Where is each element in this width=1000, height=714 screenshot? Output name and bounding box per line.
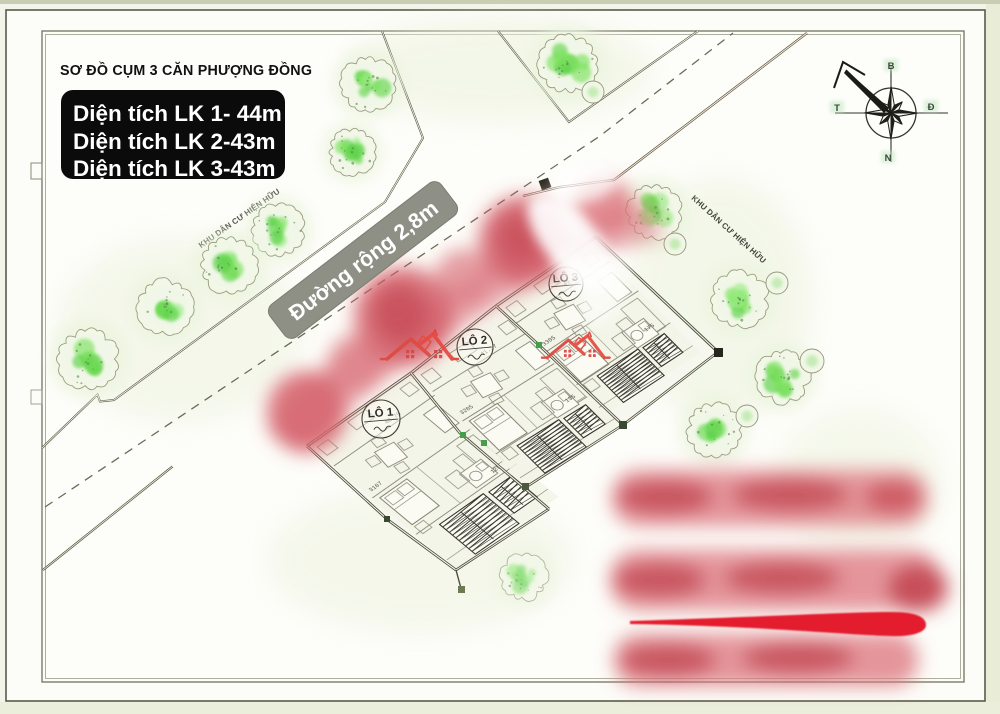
svg-text:Diện tích LK 2-43m: Diện tích LK 2-43m [73,129,276,154]
svg-text:Đ: Đ [928,102,935,113]
svg-text:T: T [834,103,840,114]
svg-text:N: N [885,153,892,164]
svg-text:B: B [888,61,895,72]
svg-text:SƠ ĐỒ CỤM 3 CĂN PHƯỢNG ĐỒNG: SƠ ĐỒ CỤM 3 CĂN PHƯỢNG ĐỒNG [60,61,312,79]
svg-text:Diện tích LK 3-43m: Diện tích LK 3-43m [73,156,276,181]
svg-text:LÔ 2: LÔ 2 [461,333,488,348]
svg-text:Diện tích LK 1- 44m: Diện tích LK 1- 44m [73,101,282,126]
svg-text:LÔ 1: LÔ 1 [367,405,394,420]
